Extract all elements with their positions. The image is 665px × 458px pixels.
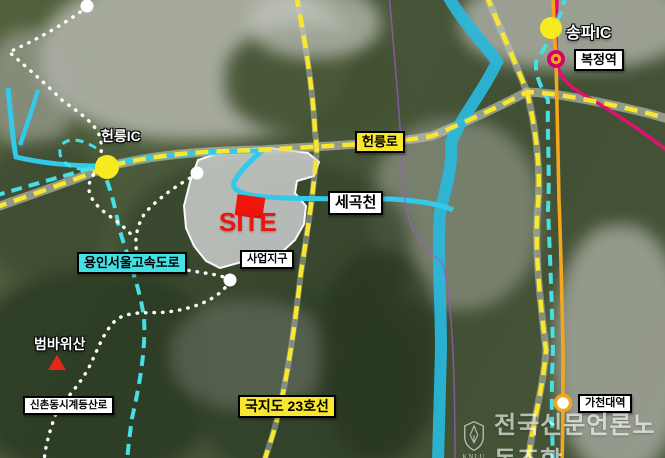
heolleungro-road-label: 헌릉로 <box>355 131 405 153</box>
segok-stream-label: 세곡천 <box>328 191 383 215</box>
heolleung-ic-label: 헌릉IC <box>101 126 141 146</box>
project-district-label: 사업지구 <box>240 250 294 269</box>
watermark-org-text: 전국신문언론노동조합 <box>494 405 665 458</box>
watermark-abbr: KNLU <box>462 453 485 458</box>
site-label: SITE <box>219 207 277 238</box>
watermark: KNLU 전국신문언론노동조합 <box>462 405 665 458</box>
bokjeong-station-label: 복정역 <box>574 49 624 71</box>
songpa-ic-label: 송파IC <box>566 19 611 43</box>
watermark-logo: KNLU <box>462 420 486 458</box>
route23-road-label: 국지도 23호선 <box>238 395 336 418</box>
beombawi-mountain-label: 범바위산 <box>34 334 86 354</box>
yongin-seoul-expressway-label: 용인서울고속도로 <box>77 252 187 274</box>
map-labels: 송파IC 복정역 헌릉IC 헌릉로 세곡천 SITE 사업지구 용인서울고속도로… <box>0 0 665 458</box>
union-shield-pen-icon <box>462 420 486 452</box>
site-location-map: 송파IC 복정역 헌릉IC 헌릉로 세곡천 SITE 사업지구 용인서울고속도로… <box>0 0 665 458</box>
sinchon-trail-label: 신촌동시계등산로 <box>23 396 114 415</box>
